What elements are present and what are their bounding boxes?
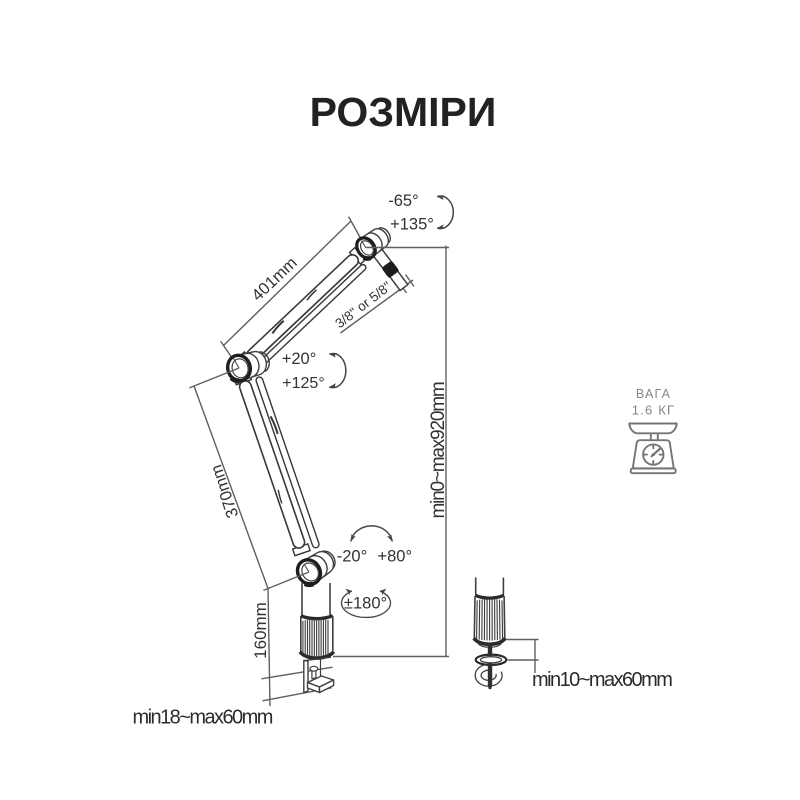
svg-text:min10~max60mm: min10~max60mm (532, 669, 672, 691)
svg-text:+135°: +135° (390, 216, 434, 234)
svg-text:min0~max920mm: min0~max920mm (428, 382, 449, 518)
svg-text:160mm: 160mm (251, 602, 270, 659)
svg-text:+20°: +20° (282, 350, 317, 368)
svg-text:±180°: ±180° (344, 595, 387, 613)
svg-text:-65°: -65° (388, 192, 418, 210)
svg-text:ВАГА: ВАГА (636, 387, 671, 401)
svg-text:+125°: +125° (282, 375, 324, 392)
svg-text:-20°: -20° (337, 548, 367, 566)
svg-text:+80°: +80° (378, 548, 413, 566)
svg-text:min18~max60mm: min18~max60mm (133, 707, 273, 729)
svg-text:РОЗМІРИ: РОЗМІРИ (310, 89, 497, 135)
svg-text:1.6 КГ: 1.6 КГ (632, 403, 676, 418)
